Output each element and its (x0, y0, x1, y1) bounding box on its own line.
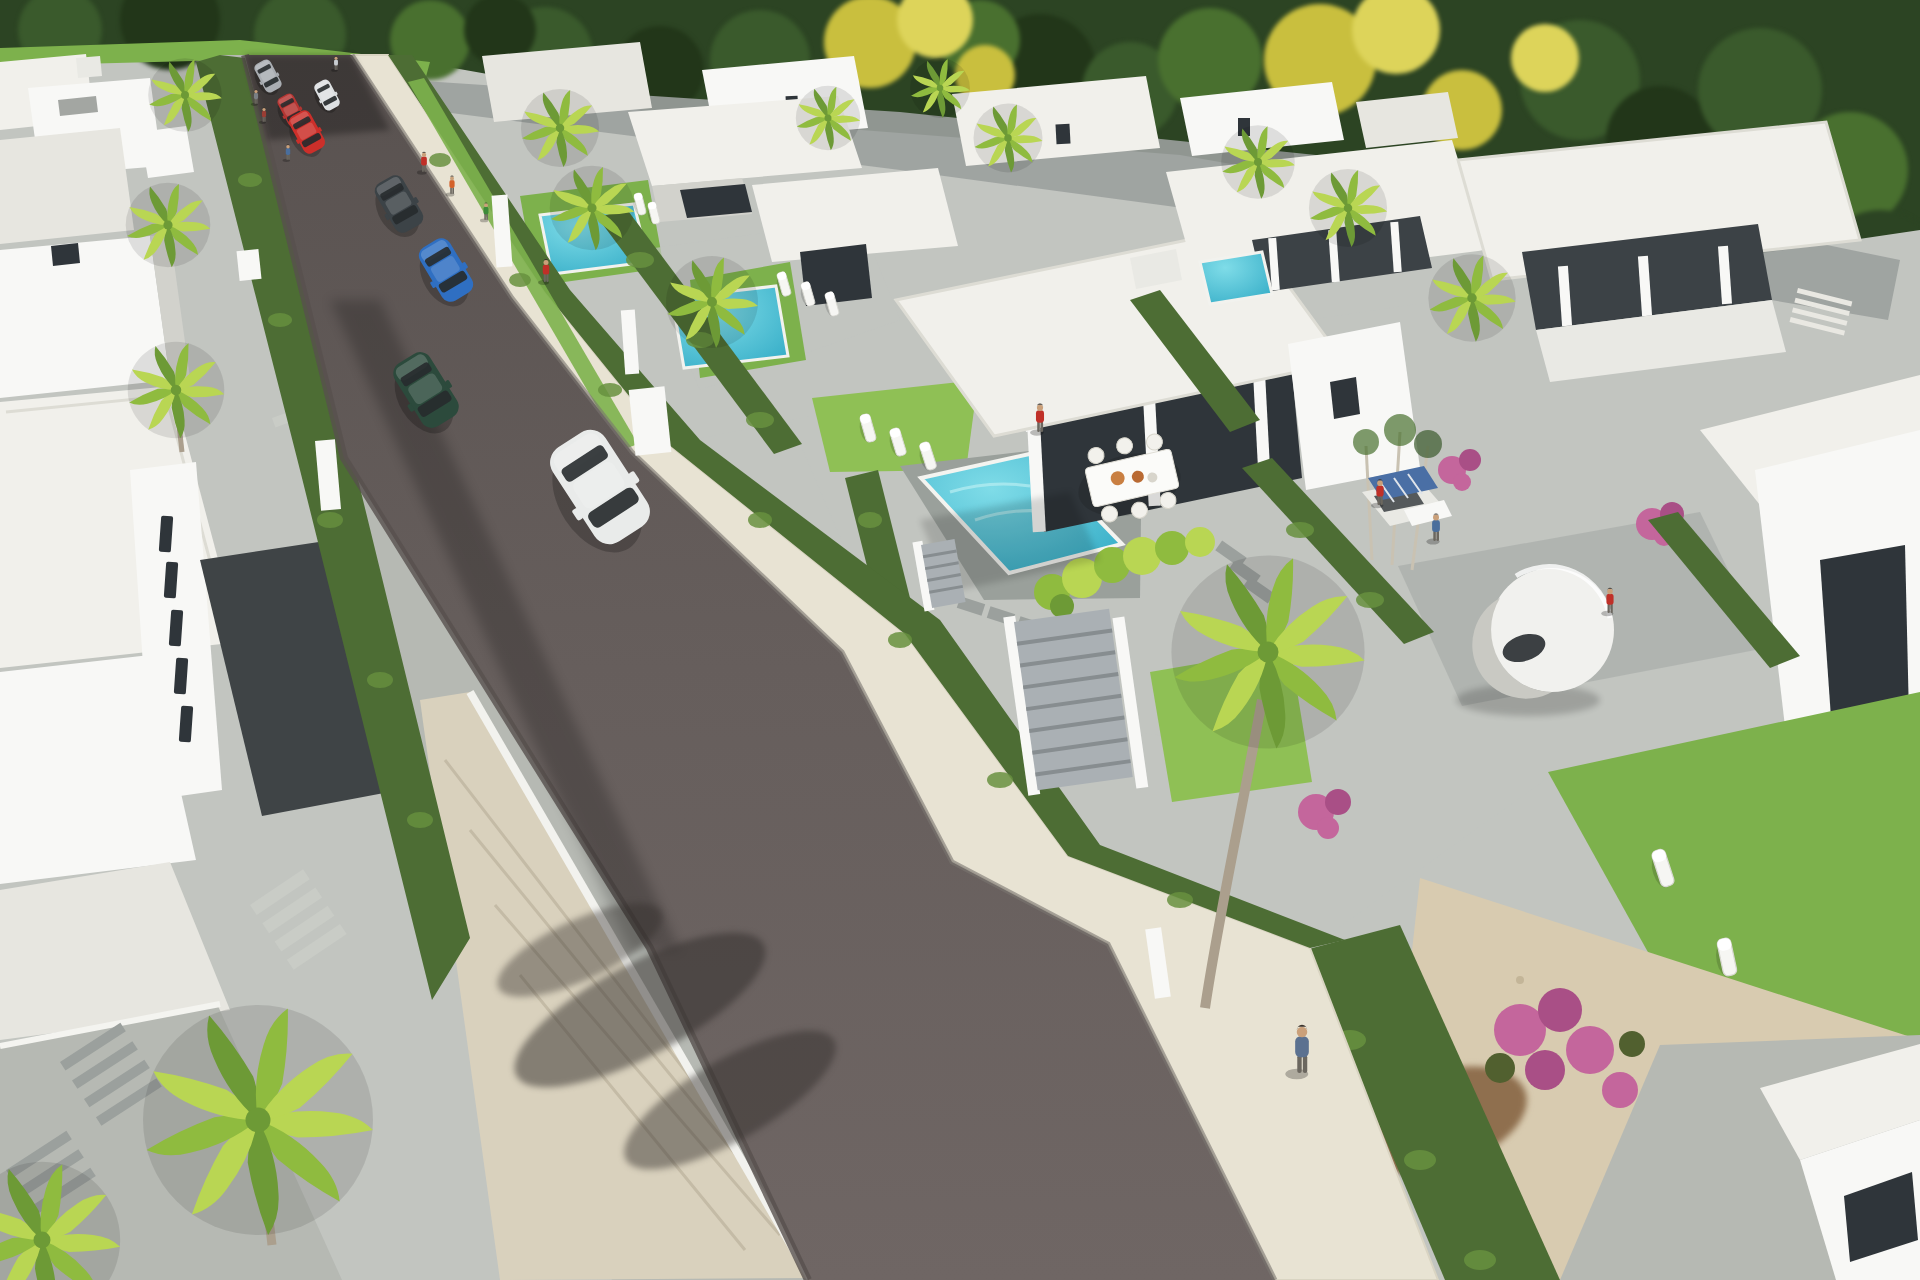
palm-left-row-1 (148, 58, 222, 132)
palm-background-1 (796, 86, 860, 151)
palm-left-row-2 (126, 183, 211, 268)
palm-background-2 (910, 58, 970, 118)
palm-background-3 (974, 104, 1043, 173)
gate-wall-panel (629, 386, 672, 455)
left-gate-panel (236, 249, 261, 281)
bg-roof-3-door (1055, 124, 1070, 145)
villa-development-render (0, 0, 1920, 1280)
palm-bottom-left-large (143, 1005, 373, 1236)
hero-right-block-window (1330, 377, 1360, 419)
left-villa-window (51, 243, 80, 266)
palm-over-rear-pool (666, 256, 758, 349)
render-canvas (0, 0, 1920, 1280)
palm-left-row-3 (128, 342, 225, 439)
palm-right-garden-large (1171, 555, 1364, 749)
villa-r1-glass (680, 184, 752, 218)
palm-background-4 (1221, 125, 1295, 199)
palm-villa-r4 (1428, 254, 1515, 342)
palm-villa-r1-b (550, 166, 635, 251)
palm-villa-r1-a (521, 89, 599, 168)
left-roof-4 (140, 126, 194, 178)
left-roof-3 (0, 128, 134, 244)
bg-roof-5 (1356, 92, 1458, 148)
palm-background-5 (1309, 169, 1387, 248)
villa-r3-pool (1200, 252, 1272, 304)
left-chimney (76, 56, 102, 78)
